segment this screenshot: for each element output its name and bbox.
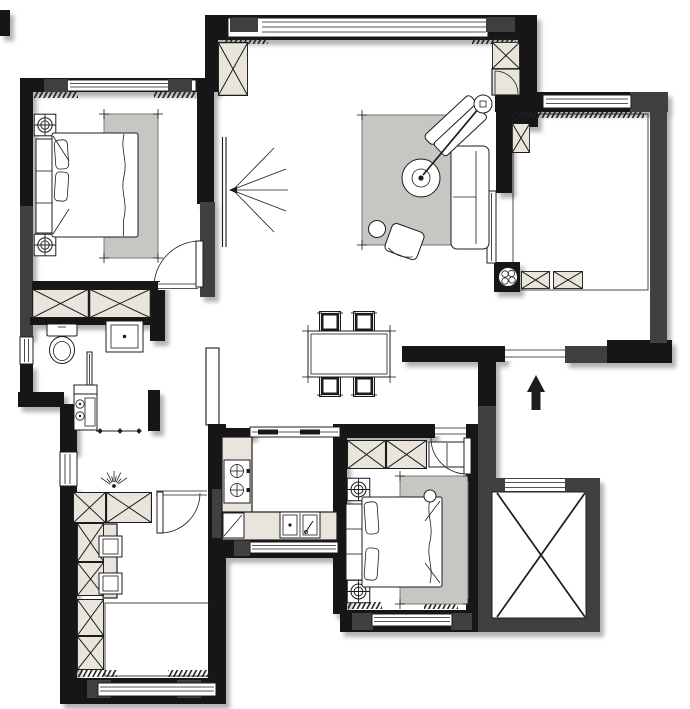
dining-chair (351, 376, 377, 397)
side-table (369, 221, 386, 238)
nightstand (34, 234, 56, 256)
kitchen-pass-through (250, 427, 340, 437)
x-cabinet (33, 289, 89, 317)
potted-plant (499, 268, 518, 287)
tv-viewing-fan (229, 148, 288, 232)
dining-chair (351, 312, 377, 333)
washing-unit (74, 385, 97, 430)
study-door (155, 489, 208, 533)
sofa (451, 146, 489, 249)
door-swing-arc (154, 241, 200, 287)
headboard (346, 504, 362, 580)
x-storage-inset (512, 123, 530, 152)
x-cabinet (492, 42, 519, 68)
wall-stub-top-left (0, 10, 10, 36)
kitchen (222, 437, 337, 540)
window-study (98, 683, 216, 696)
window-bathroom (20, 337, 33, 364)
wardrobe (33, 289, 151, 317)
x-cabinet (73, 492, 105, 522)
light-parquet-floor (105, 603, 213, 676)
x-cabinet (77, 599, 103, 635)
x-cabinet (386, 440, 426, 468)
x-cabinet (77, 636, 103, 669)
elevator-door-opening (505, 479, 565, 491)
x-cabinet (90, 289, 151, 317)
dining-table (308, 331, 390, 377)
stool (99, 536, 122, 557)
double-bed (346, 490, 442, 587)
kitchen-sink (280, 512, 320, 538)
wardrobe (347, 440, 466, 468)
x-cabinet (218, 43, 247, 96)
curtain-hatch (34, 92, 78, 98)
duct-hatch (206, 348, 219, 425)
double-bed (36, 133, 138, 237)
wall-shelf (96, 428, 142, 434)
front-door-opening (505, 347, 565, 361)
curtain-hatch (73, 670, 117, 677)
door-leaf (157, 492, 163, 533)
dining-chair (317, 376, 343, 397)
living-dining (218, 42, 520, 396)
window-balcony (543, 95, 631, 108)
corner-cabinet (223, 513, 244, 538)
window-living-top (224, 18, 516, 44)
tv-wall-mounted (223, 137, 289, 247)
floor-plan-page (0, 0, 690, 709)
second-bedroom (346, 426, 473, 609)
nightstand-lamp-icon (34, 114, 56, 136)
entry-arrow-icon (527, 375, 545, 410)
curtain-hatch (516, 112, 644, 118)
hall-wardrobe (73, 492, 151, 522)
entry-corridor (527, 375, 545, 410)
dark-parquet-deck (513, 114, 648, 290)
door-leaf (196, 241, 203, 287)
toilet (47, 324, 77, 364)
bedroom-door (154, 241, 203, 290)
service-shaft (206, 348, 219, 425)
door-swing-arc (160, 493, 200, 533)
x-cabinet (521, 271, 549, 289)
entry-cabinets (218, 42, 520, 95)
bathroom (47, 321, 143, 393)
headboard (36, 139, 52, 233)
x-cabinet (553, 271, 582, 289)
elevator (492, 492, 586, 618)
door-leaf (464, 438, 471, 474)
curtain-hatch (168, 670, 208, 677)
x-cabinet (106, 492, 151, 522)
balcony (499, 112, 649, 290)
nightstand (34, 114, 56, 136)
stool (99, 573, 122, 594)
window-master-bedroom (34, 79, 196, 98)
ceiling-light-fan-symbol (101, 471, 127, 488)
cabinet (492, 69, 520, 95)
x-cabinet (347, 440, 385, 468)
nightstand-lamp-icon (34, 234, 56, 256)
washbasin-vanity (106, 321, 143, 352)
curtain-hatch (154, 92, 196, 98)
gas-stove (224, 460, 250, 503)
dining-set (302, 312, 396, 397)
window-kitchen (250, 542, 338, 553)
window-left-spine (60, 452, 77, 486)
dining-chair (317, 312, 343, 333)
floor-plan-canvas (0, 0, 690, 709)
laundry-hall (73, 385, 151, 523)
